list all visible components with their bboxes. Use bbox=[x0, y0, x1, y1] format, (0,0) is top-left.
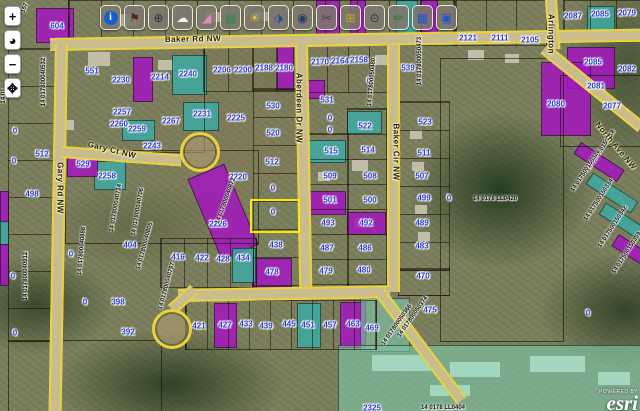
lot-number-label: 2188 bbox=[255, 64, 273, 73]
lot-number-label: 416 bbox=[171, 253, 184, 262]
lot-number-label: 478 bbox=[265, 268, 278, 277]
lot-number-label: 2085 bbox=[584, 58, 602, 67]
bulb-icon: ☀ bbox=[249, 12, 260, 24]
lot-number-label: 604 bbox=[50, 22, 63, 31]
map-button[interactable]: ▦ bbox=[220, 5, 241, 30]
lot-number-label: 2259 bbox=[128, 125, 146, 134]
lot-number-label: 522 bbox=[358, 122, 371, 131]
lot-number-label: 523 bbox=[418, 118, 431, 127]
bulb-button[interactable]: ☀ bbox=[244, 5, 265, 30]
zoom-out-button[interactable]: − bbox=[4, 54, 21, 74]
lot-number-label: 422 bbox=[195, 254, 208, 263]
lot-number-label: 470 bbox=[416, 272, 429, 281]
pencil-icon: ✏ bbox=[393, 12, 403, 24]
lot-number-label: 0 bbox=[11, 272, 15, 281]
network-icon: ⊞ bbox=[345, 12, 355, 24]
scissors-icon: ✂ bbox=[321, 12, 331, 24]
lot-number-label: 0 bbox=[447, 194, 451, 203]
parcel-grid bbox=[305, 45, 390, 93]
lot-number-label: 0 bbox=[271, 208, 275, 217]
lot-number-label: 483 bbox=[415, 242, 428, 251]
flag-button[interactable]: ⚑ bbox=[124, 5, 145, 30]
lot-number-label: 514 bbox=[361, 146, 374, 155]
street-name-label: Gary Rd NW bbox=[56, 162, 65, 214]
lot-number-label: 0 bbox=[13, 127, 17, 136]
lot-number-label: 0 bbox=[328, 126, 332, 135]
lot-number-label: 2258 bbox=[98, 172, 116, 181]
lot-number-label: 492 bbox=[359, 219, 372, 228]
parcel-outline bbox=[65, 45, 205, 153]
lot-number-label: 2170 bbox=[311, 58, 329, 67]
parcel-id-label: 14 017800050473 bbox=[417, 37, 423, 85]
cul-de-sac bbox=[152, 309, 192, 349]
lot-number-label: 445 bbox=[282, 320, 295, 329]
lot-number-label: 0 bbox=[12, 157, 16, 166]
lot-number-label: 0 bbox=[271, 184, 275, 193]
lot-number-label: 439 bbox=[259, 322, 272, 331]
lot-number-label: 493 bbox=[321, 219, 334, 228]
lot-number-label: 499 bbox=[417, 194, 430, 203]
lot-number-label: 2267 bbox=[162, 117, 180, 126]
cloud-button[interactable]: ☁ bbox=[172, 5, 193, 30]
search-icon: ⊙ bbox=[369, 12, 379, 24]
lot-number-label: 404 bbox=[123, 241, 136, 250]
globe-button[interactable]: ◕ bbox=[4, 30, 21, 50]
lot-number-label: 2079 bbox=[618, 9, 636, 18]
cul-de-sac bbox=[180, 132, 220, 172]
parcel-outline bbox=[8, 340, 162, 411]
flag-icon: ⚑ bbox=[129, 12, 140, 24]
grid-button[interactable]: ▦ bbox=[412, 5, 433, 30]
lot-number-label: 512 bbox=[35, 150, 48, 159]
lot-number-label: 2260 bbox=[110, 120, 128, 129]
lot-number-label: 2087 bbox=[564, 12, 582, 21]
lot-number-label: 451 bbox=[301, 321, 314, 330]
lot-number-label: 530 bbox=[266, 102, 279, 111]
lot-number-label: 489 bbox=[415, 219, 428, 228]
lot-number-label: 0 bbox=[69, 250, 73, 259]
lot-number-label: 539 bbox=[401, 64, 414, 73]
lot-number-label: 501 bbox=[323, 196, 336, 205]
lot-number-label: 2214 bbox=[151, 73, 169, 82]
lot-number-label: 2243 bbox=[143, 142, 161, 151]
parcel-id-label: 14 017800040912 bbox=[23, 252, 29, 300]
street-name-label: Baker Rd NW bbox=[165, 34, 221, 44]
zoom-in-button[interactable]: ⊕ bbox=[148, 5, 169, 30]
lot-number-label: 529 bbox=[76, 160, 89, 169]
parcel-id-label: 14 0178 LL0420 bbox=[473, 196, 517, 202]
lot-number-label: 2080 bbox=[547, 100, 565, 109]
lot-number-label: 2085 bbox=[591, 10, 609, 19]
lot-number-label: 434 bbox=[236, 254, 249, 263]
lot-number-label: 427 bbox=[218, 321, 231, 330]
parcel-grid bbox=[253, 88, 300, 290]
search-button[interactable]: ⊙ bbox=[364, 5, 385, 30]
lot-number-label: 507 bbox=[415, 172, 428, 181]
info-icon: i bbox=[104, 11, 118, 25]
lot-number-label: 551 bbox=[85, 67, 98, 76]
zoom-pan-controls: +◕−✥ bbox=[4, 6, 21, 98]
camera-button[interactable]: ◉ bbox=[292, 5, 313, 30]
car-button[interactable]: ⬗ bbox=[268, 5, 289, 30]
lot-number-label: 0 bbox=[328, 114, 332, 123]
street-name-label: Aberdeen Dr NW bbox=[295, 73, 304, 144]
pan-button[interactable]: ✥ bbox=[4, 78, 21, 98]
lot-number-label: 511 bbox=[418, 149, 431, 158]
lot-number-label: 509 bbox=[323, 172, 336, 181]
lot-number-label: 520 bbox=[266, 129, 279, 138]
lot-number-label: 2164 bbox=[331, 57, 349, 66]
lot-number-label: 0 bbox=[13, 329, 17, 338]
lot-number-label: 433 bbox=[239, 320, 252, 329]
lot-number-label: 0 bbox=[586, 309, 590, 318]
lot-number-label: 2158 bbox=[350, 56, 368, 65]
grid-icon: ▦ bbox=[417, 12, 428, 24]
lot-number-label: 2111 bbox=[492, 34, 509, 43]
pencil-button[interactable]: ✏ bbox=[388, 5, 409, 30]
lot-number-label: 469 bbox=[365, 324, 378, 333]
eraser-button[interactable]: ◢ bbox=[196, 5, 217, 30]
street-name-label: Baker Cir NW bbox=[392, 123, 401, 180]
lot-number-label: 475 bbox=[423, 306, 436, 315]
lot-number-label: 480 bbox=[357, 266, 370, 275]
network-button[interactable]: ⊞ bbox=[340, 5, 361, 30]
lot-number-label: 398 bbox=[111, 298, 124, 307]
lot-number-label: 2200 bbox=[234, 66, 252, 75]
lot-number-label: 438 bbox=[269, 241, 282, 250]
map-viewport[interactable]: 6042121211121052087208520795512230221422… bbox=[0, 0, 640, 411]
car-icon: ⬗ bbox=[274, 12, 283, 24]
lot-number-label: 486 bbox=[358, 244, 371, 253]
esri-attribution: POWERED BY esri bbox=[599, 389, 638, 411]
lot-number-label: 457 bbox=[323, 321, 336, 330]
zoom-in-button[interactable]: + bbox=[4, 6, 21, 26]
lot-number-label: 2081 bbox=[587, 82, 605, 91]
lot-number-label: 392 bbox=[121, 328, 134, 337]
eraser-icon: ◢ bbox=[202, 12, 211, 24]
lot-number-label: 2325 bbox=[363, 404, 381, 411]
lot-number-label: 2230 bbox=[112, 76, 130, 85]
lot-number-label: 500 bbox=[363, 196, 376, 205]
save-icon: ▣ bbox=[441, 12, 452, 24]
scissors-button[interactable]: ✂ bbox=[316, 5, 337, 30]
parcel-id-label: 14 017800040532 bbox=[41, 58, 47, 106]
save-button[interactable]: ▣ bbox=[436, 5, 457, 30]
lot-number-label: 2231 bbox=[193, 110, 211, 119]
lot-number-label: 2206 bbox=[213, 66, 231, 75]
lot-number-label: 2180 bbox=[275, 64, 293, 73]
lot-number-label: 2105 bbox=[521, 36, 539, 45]
lot-number-label: 2121 bbox=[459, 34, 477, 43]
lot-number-label: 508 bbox=[363, 172, 376, 181]
info-button[interactable]: i bbox=[100, 5, 121, 30]
lot-number-label: 2082 bbox=[618, 65, 636, 74]
parcel-id-label: 14 0178 LL0404 bbox=[421, 405, 465, 411]
lot-number-label: 515 bbox=[324, 147, 337, 156]
lot-number-label: 487 bbox=[320, 244, 333, 253]
map-icon: ▦ bbox=[225, 12, 236, 24]
street-name-label: Arlington bbox=[547, 14, 556, 54]
parcel-id-label: 157 bbox=[20, 2, 29, 13]
lot-number-label: 2240 bbox=[179, 70, 197, 79]
cloud-icon: ☁ bbox=[177, 12, 189, 24]
esri-logo: esri bbox=[607, 391, 639, 411]
lot-number-label: 463 bbox=[346, 320, 359, 329]
lot-number-label: 531 bbox=[320, 96, 333, 105]
lot-number-label: 512 bbox=[265, 158, 278, 167]
lot-number-label: 0 bbox=[83, 298, 87, 307]
lot-number-label: 498 bbox=[25, 190, 38, 199]
parcel-highlight-teal_light[interactable] bbox=[338, 345, 640, 411]
lot-number-label: 479 bbox=[319, 267, 332, 276]
map-toolbar: i⚑⊕☁◢▦☀⬗◉✂⊞⊙✏▦▣ bbox=[100, 5, 457, 30]
lot-number-label: 2077 bbox=[603, 102, 621, 111]
lot-number-label: 2257 bbox=[113, 108, 131, 117]
lot-number-label: 428 bbox=[216, 255, 229, 264]
lot-number-label: 2225 bbox=[227, 114, 245, 123]
lot-number-label: 421 bbox=[192, 322, 205, 331]
zoom-in-icon: ⊕ bbox=[153, 12, 163, 24]
camera-icon: ◉ bbox=[297, 12, 307, 24]
